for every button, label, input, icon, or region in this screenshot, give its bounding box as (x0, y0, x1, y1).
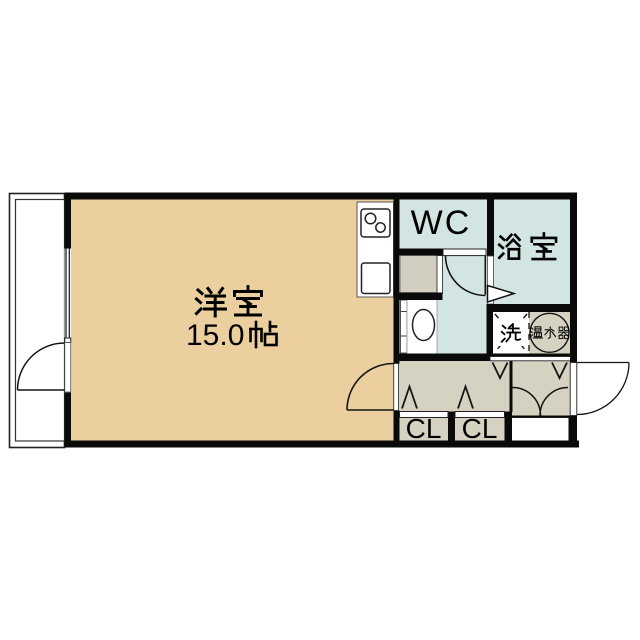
svg-text:CL: CL (406, 413, 442, 444)
svg-text:15.0: 15.0 (186, 319, 244, 352)
svg-text:WC: WC (411, 204, 472, 242)
svg-text:CL: CL (462, 413, 498, 444)
